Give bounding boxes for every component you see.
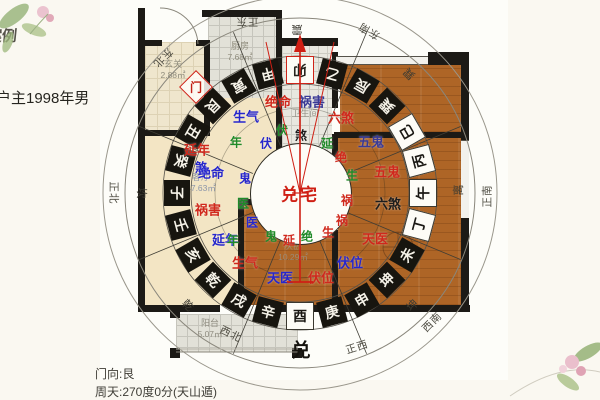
floorplan-compass-diagram: 兑宅 门 子癸丑艮寅甲卯乙辰巽巳丙午丁未坤申庚酉辛戌乾亥壬震巽离坤兑乾坎正东东南…	[0, 0, 600, 400]
house-type-label: 兑宅	[281, 181, 319, 206]
north-arrow-icon	[294, 34, 306, 52]
fengshui-floorplan-page: 兑宅 门 子癸丑艮寅甲卯乙辰巽巳丙午丁未坤申庚酉辛戌乾亥壬震巽离坤兑乾坎正东东南…	[0, 0, 600, 400]
